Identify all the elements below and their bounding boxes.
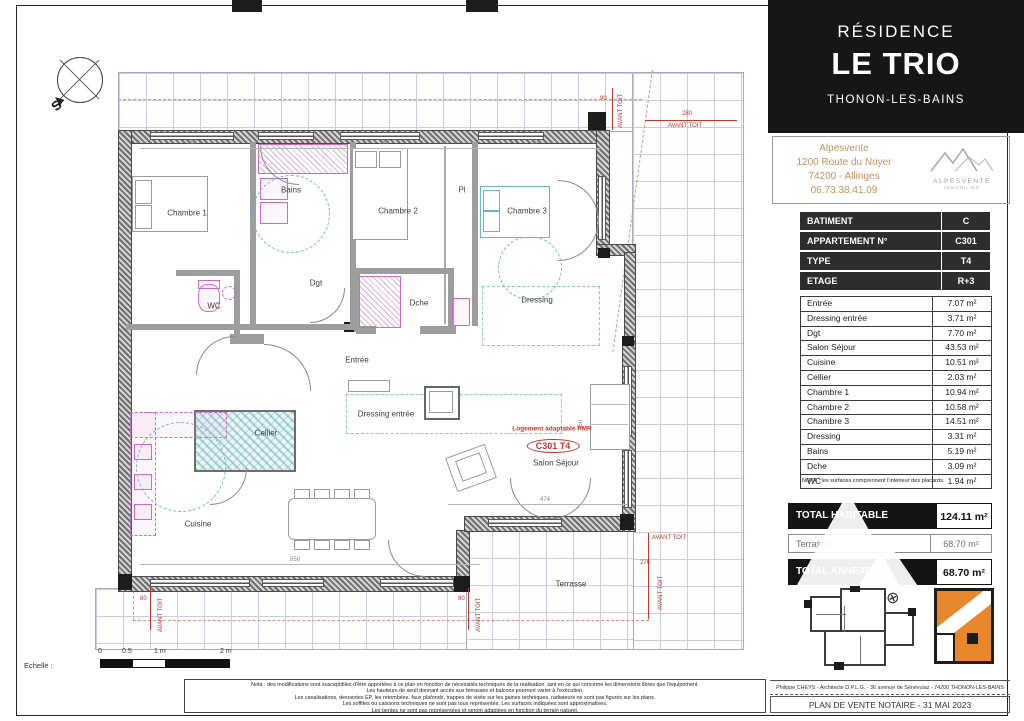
pier: [118, 574, 132, 590]
total-habitable-value: 124.11 m²: [936, 503, 992, 529]
key-plan-overview: [804, 586, 922, 672]
avant-toit-label: 80: [458, 596, 465, 602]
pillow: [483, 211, 500, 232]
sofa-cushion-line: [590, 424, 628, 425]
partition-wc: [234, 276, 240, 340]
residence-city: THONON-LES-BAINS: [768, 94, 1024, 106]
window: [340, 132, 420, 140]
sale-plan-page: 280 339 60 304 850 474 450 90 AVANT TOIT…: [0, 0, 1024, 721]
pillow: [135, 205, 152, 229]
shower-door: [452, 298, 470, 326]
info-value: R+3: [942, 272, 990, 290]
dim-label: 280: [187, 140, 197, 146]
avant-toit-label: 80: [140, 596, 147, 602]
door-arc: [388, 540, 425, 577]
pmr-circle-cuisine: [136, 422, 226, 512]
room-label-dche: Dche: [410, 299, 429, 308]
surface-row: Salon Séjour43.53 m²: [801, 341, 991, 356]
info-label: BATIMENT: [800, 212, 942, 230]
info-label: TYPE: [800, 252, 942, 270]
partition-entree: [230, 334, 264, 344]
agency-logo-name: ALPESVENTE: [915, 178, 1009, 185]
surface-value: 3.09 m²: [932, 460, 991, 474]
avant-toit-label: AVANT TOIT: [658, 576, 664, 610]
floor-plan: 280 339 60 304 850 474 450 90 AVANT TOIT…: [0, 0, 768, 721]
partition: [250, 142, 256, 330]
total-habitable-row: TOTAL HABITABLE 124.11 m²: [788, 503, 992, 529]
door-arc: [558, 220, 599, 261]
dim-line: [140, 564, 480, 565]
room-label-chambre2: Chambre 2: [378, 207, 418, 216]
partition-wc: [176, 270, 240, 276]
dim-line: [140, 148, 600, 149]
surface-row: Chambre 210.58 m²: [801, 401, 991, 416]
chair: [294, 540, 310, 550]
notes-box: Nota : des modifications sont susceptibl…: [184, 679, 766, 713]
roof-overhang-line: [133, 620, 649, 621]
residence-line: RÉSIDENCE: [768, 22, 1024, 42]
partition: [472, 142, 478, 326]
dim-label: 850: [290, 557, 300, 563]
chair: [354, 489, 370, 499]
dim-label: 339: [379, 140, 389, 146]
pmr-note: Logement adaptable PMR: [512, 426, 591, 433]
agency-logo-sub: IMMOBILIER: [915, 185, 1009, 190]
door-arc: [558, 180, 599, 221]
info-label: APPARTEMENT N°: [800, 232, 942, 250]
surface-value: 10.94 m²: [932, 386, 991, 400]
avant-toit-label: 90: [600, 96, 607, 102]
scale-tick: 2 m: [220, 648, 232, 655]
door-arc: [264, 344, 311, 391]
pillow: [355, 151, 377, 168]
avant-toit-label: AVANT TOIT: [476, 598, 482, 632]
pier: [620, 514, 634, 530]
key-plan-highlight: [934, 588, 994, 664]
dim-line: [448, 504, 628, 505]
pier: [588, 112, 606, 130]
terrace-grid-mid: [464, 530, 634, 650]
agency-box: Alpesvente 1200 Route du Noyer 74200 - A…: [772, 136, 1010, 204]
info-value: C301: [942, 232, 990, 250]
sofa: [590, 384, 630, 450]
window: [150, 132, 234, 140]
surface-label: Salon Séjour: [801, 341, 932, 355]
avant-toit-label: AVANT TOIT: [652, 535, 686, 541]
wall-stub: [466, 0, 498, 12]
key-plan-pier: [804, 600, 812, 608]
scale-tick: 0.5: [122, 648, 132, 655]
unit-info-table: BATIMENT C APPARTEMENT N° C301 TYPE T4 E…: [800, 212, 990, 292]
surfaces-nota: NOTA : les surfaces comprennent l'intéri…: [802, 478, 944, 484]
avant-toit-label: 276: [640, 560, 650, 566]
agency-address: Alpesvente 1200 Route du Noyer 74200 - A…: [773, 137, 915, 203]
red-dim-line: [612, 88, 613, 130]
red-dim-line: [645, 120, 737, 121]
avant-toit-label: AVANT TOIT: [618, 94, 624, 128]
room-label-dressing-entree: Dressing entrée: [358, 410, 414, 419]
agency-city: 74200 - Allinges: [773, 170, 915, 184]
room-label-cellier: Cellier: [255, 429, 278, 438]
residence-name: LE TRIO: [768, 46, 1024, 82]
surface-value: 10.51 m²: [932, 356, 991, 370]
surface-row: Bains5.19 m²: [801, 445, 991, 460]
scale-tick: 0: [98, 648, 102, 655]
scale-bar: Echelle : 0 0.5 1 m 2 m: [24, 646, 254, 678]
partition: [126, 324, 356, 330]
pmr-circle-wc: [222, 286, 236, 300]
scale-label: Echelle :: [24, 661, 53, 670]
mountains-icon: [929, 147, 995, 173]
surface-row: Chambre 110.94 m²: [801, 386, 991, 401]
shower-tray: [359, 276, 401, 328]
surface-label: Bains: [801, 445, 932, 459]
compass: S: [52, 52, 108, 108]
chair: [294, 489, 310, 499]
surface-value: 3.31 m²: [932, 430, 991, 444]
key-plan-pier: [967, 633, 978, 644]
surface-label: Cuisine: [801, 356, 932, 370]
chair: [314, 489, 330, 499]
key-plan-line: [844, 606, 845, 632]
surface-value: 43.53 m²: [932, 341, 991, 355]
surface-label: Dgt: [801, 327, 932, 341]
surface-value: 2.03 m²: [932, 371, 991, 385]
surface-label: Dressing: [801, 430, 932, 444]
surface-value: 7.07 m²: [932, 297, 991, 311]
room-label-entree: Entrée: [345, 356, 369, 365]
wardrobe-box-inner: [429, 391, 453, 413]
room-label-terrasse: Terrasse: [556, 580, 587, 589]
surface-row: Dressing3.31 m²: [801, 430, 991, 445]
window: [598, 176, 606, 240]
surface-row: Dressing entrée3.71 m²: [801, 312, 991, 327]
sofa-cushion-line: [590, 404, 628, 405]
key-plan-pier: [850, 586, 860, 592]
window: [262, 579, 324, 587]
window: [624, 450, 632, 508]
room-label-dressing: Dressing: [521, 296, 553, 305]
doc-title-box: PLAN DE VENTE NOTAIRE - 31 MAI 2023: [770, 696, 1010, 713]
door-arc: [310, 288, 345, 323]
key-plan-line: [860, 636, 861, 664]
info-value: T4: [942, 252, 990, 270]
roof-overhang-line: [133, 590, 134, 620]
surface-label: Entrée: [801, 297, 932, 311]
pier: [598, 248, 610, 258]
total-annexes-value: 68.70 m²: [936, 559, 992, 585]
room-label-bains: Bains: [281, 186, 301, 195]
chair: [334, 540, 350, 550]
surface-label: Cellier: [801, 371, 932, 385]
pillow: [483, 190, 500, 211]
room-label-chambre3: Chambre 3: [507, 207, 547, 216]
red-dim-line: [150, 588, 151, 630]
avant-toit-label: AVANT TOIT: [668, 123, 702, 129]
info-row: APPARTEMENT N° C301: [800, 232, 990, 250]
window: [478, 132, 544, 140]
key-plan-outline: [824, 630, 886, 666]
info-row: BATIMENT C: [800, 212, 990, 230]
surface-row: Entrée7.07 m²: [801, 297, 991, 312]
pillow: [379, 151, 401, 168]
scale-tick: 1 m: [154, 648, 166, 655]
room-label-chambre1: Chambre 1: [167, 209, 207, 218]
roof-overhang-line: [118, 99, 642, 100]
surface-label: Chambre 2: [801, 401, 932, 415]
avant-toit-label: 280: [682, 111, 692, 117]
info-value: C: [942, 212, 990, 230]
agency-street: 1200 Route du Noyer: [773, 156, 915, 170]
room-label-dgt: Dgt: [310, 279, 322, 288]
room-label-salon: Salon Séjour: [533, 459, 579, 468]
partition-dche: [354, 268, 454, 274]
notes-line: Les pentes ne sont pas représentées et s…: [185, 708, 765, 714]
surface-row: Dche3.09 m²: [801, 460, 991, 475]
chair: [334, 489, 350, 499]
room-label-cuisine: Cuisine: [185, 520, 212, 529]
agency-name: Alpesvente: [773, 142, 915, 156]
surface-label: Dche: [801, 460, 932, 474]
key-plan-line: [816, 614, 846, 615]
surface-label: Dressing entrée: [801, 312, 932, 326]
wall-stub: [232, 0, 262, 12]
wall-right-mid: [624, 252, 636, 346]
avant-toit-label: AVANT TOIT: [158, 598, 164, 632]
surface-label: Chambre 3: [801, 415, 932, 429]
architect-line-box: Philippe CHEYS - Architecte D.P.L.G. - 3…: [770, 680, 1010, 695]
window: [258, 132, 314, 140]
partition: [444, 146, 446, 324]
surface-row: Cuisine10.51 m²: [801, 356, 991, 371]
window: [150, 579, 250, 587]
key-plan-pier: [908, 608, 916, 616]
dim-label: 474: [540, 497, 550, 503]
window: [380, 579, 454, 587]
key-plan-outline: [884, 612, 914, 646]
surface-row: Cellier2.03 m²: [801, 371, 991, 386]
surface-value: 14.51 m²: [932, 415, 991, 429]
surface-value: 5.19 m²: [932, 445, 991, 459]
surface-row: Dgt7.70 m²: [801, 327, 991, 342]
key-plan-pier: [834, 662, 844, 670]
red-dim-line: [648, 533, 649, 619]
key-plan-notch: [937, 633, 955, 661]
agency-phone: 06.73.38.41.09: [773, 184, 915, 198]
surface-value: 10.58 m²: [932, 401, 991, 415]
chair: [314, 540, 330, 550]
info-row: TYPE T4: [800, 252, 990, 270]
pmr-circle-dressing: [498, 236, 562, 300]
dining-table: [288, 498, 376, 540]
unit-tag: C301 T4: [527, 439, 580, 453]
info-row: ETAGE R+3: [800, 272, 990, 290]
door-arc: [196, 336, 235, 375]
scale-bar-strip: [100, 659, 230, 668]
entry-console: [348, 380, 390, 392]
toilet-tank: [198, 280, 220, 289]
window: [488, 519, 562, 527]
info-label: ETAGE: [800, 272, 942, 290]
surface-label: Chambre 1: [801, 386, 932, 400]
surface-value: 3.71 m²: [932, 312, 991, 326]
project-header: RÉSIDENCE LE TRIO THONON-LES-BAINS: [768, 0, 1024, 133]
room-label-wc: WC: [207, 302, 220, 311]
surfaces-table: Entrée7.07 m² Dressing entrée3.71 m² Dgt…: [800, 296, 992, 489]
dim-label: 304: [531, 140, 541, 146]
dim-label: 60: [443, 140, 450, 146]
door-arc: [550, 478, 591, 519]
surface-row: Chambre 314.51 m²: [801, 415, 991, 430]
room-label-pl: Pl: [458, 186, 465, 195]
agency-logo: ALPESVENTE IMMOBILIER: [915, 137, 1009, 203]
pillow: [135, 180, 152, 204]
pier: [622, 336, 634, 346]
red-dim-line: [468, 588, 469, 630]
kitchen-unit: [134, 504, 152, 520]
surface-value: 7.70 m²: [932, 327, 991, 341]
partition-entree: [420, 326, 456, 334]
chair: [354, 540, 370, 550]
terrasse-value: 68.70 m²: [930, 535, 991, 552]
